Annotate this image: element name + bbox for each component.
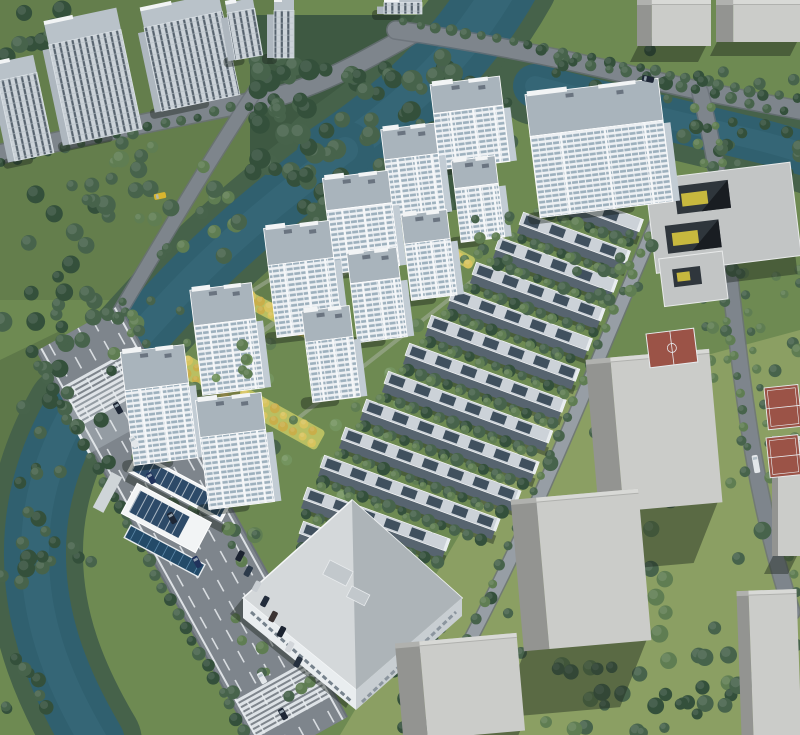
tree-highlight [461,426,466,431]
tree-highlight [737,436,743,442]
tree-highlight [56,335,63,342]
tree-highlight [558,61,564,67]
tree-highlight [11,654,18,661]
tree-highlight [660,723,666,729]
tree-highlight [531,239,537,245]
sports-court [764,384,800,429]
tree-highlight [115,501,123,509]
tree-highlight [503,98,508,103]
tree-highlight [464,284,469,289]
tree-highlight [15,576,23,584]
tree-highlight [431,23,437,29]
tree-highlight [269,163,277,171]
tree-highlight [383,433,388,438]
tree-highlight [520,304,525,309]
tree-highlight [95,413,103,421]
block-roof-highlight [652,0,711,4]
tree-highlight [406,474,411,479]
tree-highlight [403,102,414,113]
tree-highlight [157,583,163,589]
tree-highlight [129,183,138,192]
tree-highlight [691,121,696,126]
tree-highlight [585,223,591,229]
tree-highlight [486,324,493,331]
tree-highlight [353,455,359,461]
tree-highlight [37,551,44,558]
tree-highlight [225,699,231,705]
tree-highlight [621,67,627,73]
tree-highlight [524,41,529,46]
tree-highlight [658,78,664,84]
tree-highlight [237,340,243,346]
tree-highlight [376,395,381,400]
tree-highlight [610,231,618,239]
tree-highlight [135,214,141,220]
tree-highlight [391,471,396,476]
tree-highlight [736,389,741,394]
tree-highlight [143,122,148,127]
tree-highlight [378,463,385,470]
tree-highlight [245,103,250,108]
tree-highlight [432,556,439,563]
tree-highlight [533,380,538,385]
rooftop-unit [433,217,440,222]
tree-highlight [252,531,257,536]
tree-highlight [691,85,696,90]
tree-highlight [128,330,133,335]
tree-highlight [475,233,481,239]
tree-highlight [615,264,621,270]
tree-highlight [726,93,732,99]
tree-highlight [76,333,85,342]
block-front-face [536,493,651,649]
tree-highlight [753,365,758,370]
tree-highlight [465,352,471,358]
tree-highlight [163,244,169,250]
tree-highlight [628,270,634,276]
tree-highlight [658,572,667,581]
tree-highlight [147,142,154,149]
tree-highlight [652,626,662,636]
tree-highlight [723,318,727,322]
tree-highlight [114,314,119,319]
tree-highlight [371,497,377,503]
tree-highlight [566,354,572,360]
tree-highlight [353,70,361,78]
tree-highlight [571,289,576,294]
tree-highlight [492,362,497,367]
tree-highlight [708,162,715,169]
tree-highlight [22,236,31,245]
tree-highlight [721,326,728,333]
tree-highlight [358,84,368,94]
tree-highlight [555,353,559,357]
tree-highlight [42,373,49,380]
tree-highlight [763,105,768,110]
tree-highlight [47,206,56,215]
tree-highlight [748,328,753,333]
tree-highlight [443,380,449,386]
tree-highlight [540,344,546,350]
tree-highlight [716,139,720,143]
tree-highlight [745,99,751,105]
rooftop-unit [478,85,485,90]
tree-highlight [730,351,735,356]
tree-highlight [114,152,123,161]
tree-highlight [470,321,475,326]
tree-highlight [740,467,746,473]
tree-highlight [548,418,554,424]
rooftop-unit [335,313,342,318]
tree-highlight [664,95,669,100]
tree-highlight [320,124,329,133]
tree-highlight [455,388,459,392]
tree-highlight [474,250,479,255]
tree-highlight [708,322,715,329]
tree-highlight [775,91,780,96]
tree-highlight [17,537,24,544]
tree-highlight [790,570,795,575]
tree-highlight [337,491,345,499]
tree-highlight [496,474,501,479]
tree-highlight [93,463,100,470]
tree-highlight [548,314,554,320]
tree-highlight [493,34,498,39]
tree-highlight [35,690,41,696]
tree-highlight [26,346,33,353]
block-front-face [611,353,723,511]
tree-highlight [719,159,724,164]
tree-highlight [80,287,89,296]
tree-highlight [461,29,467,35]
tree-highlight [620,287,625,292]
tree-highlight [645,232,651,238]
tree-highlight [510,299,516,305]
tree-highlight [755,523,765,533]
tree-highlight [538,244,542,248]
tree-highlight [161,119,166,124]
tree-highlight [23,507,29,513]
rooftop-unit [309,229,316,234]
tree-highlight [554,431,560,437]
tree-highlight [426,377,432,383]
tree-highlight [490,437,494,441]
tree-highlight [403,71,415,83]
tree-highlight [780,107,785,112]
tree-highlight [41,527,47,533]
tree-highlight [504,609,510,615]
tree-highlight [181,622,188,629]
tree-highlight [299,168,308,177]
tree-highlight [598,227,604,233]
tree-highlight [144,555,151,562]
tree-highlight [522,409,528,415]
tree-highlight [434,416,438,420]
tree-highlight [605,57,611,63]
tree-highlight [760,400,765,405]
tree-highlight [184,339,189,344]
tree-highlight [616,253,622,259]
tree-highlight [788,338,795,345]
tree-highlight [651,65,657,71]
tree-highlight [782,127,789,134]
tree-highlight [208,672,215,679]
tree-highlight [251,149,263,161]
tree-highlight [28,313,38,323]
tree-highlight [738,406,743,411]
tree-highlight [294,94,302,102]
rooftop-unit [368,179,375,184]
tree-highlight [400,436,406,442]
tree-highlight [757,384,761,388]
tree-highlight [572,218,579,225]
tree-highlight [789,75,795,81]
rendering-canvas [0,0,800,735]
tree-highlight [557,249,563,255]
scene-layers [0,0,800,735]
tree-highlight [450,525,456,531]
tree-highlight [416,83,423,90]
tree-highlight [62,387,69,394]
tree-highlight [505,212,511,218]
tree-highlight [277,125,289,137]
tree-highlight [476,534,483,541]
tree-highlight [484,290,489,295]
tree-highlight [357,491,364,498]
tree-highlight [480,597,486,603]
block-front-face [749,593,800,735]
tree-highlight [383,500,391,508]
block-side-face [716,4,733,42]
tree-highlight [135,150,143,158]
tower-side-face [267,14,274,58]
tree-highlight [447,492,452,497]
tree-highlight [106,173,113,180]
tree-highlight [102,308,110,316]
tree-highlight [448,349,453,354]
tree-highlight [625,261,631,267]
tree-highlight [698,76,704,82]
tree-highlight [518,372,523,377]
tree-highlight [399,367,403,371]
tree-highlight [729,118,734,123]
tree-highlight [458,493,464,499]
tree-highlight [588,53,593,58]
tree-highlight [445,64,456,75]
tree-highlight [793,94,798,99]
tree-highlight [713,80,720,87]
tree-highlight [238,725,245,732]
tree-highlight [217,249,226,258]
tree-highlight [744,86,751,93]
tree-highlight [637,249,642,254]
tree-highlight [719,67,725,73]
tree-highlight [474,426,481,433]
tree-highlight [365,113,373,121]
tree-highlight [569,58,574,63]
tree-highlight [121,308,126,313]
tree-highlight [676,81,683,88]
tree-highlight [649,590,658,599]
tree-highlight [57,400,62,405]
tree-highlight [410,511,417,518]
tree-highlight [560,390,566,396]
tree-highlight [288,171,297,180]
tree-highlight [412,444,417,449]
tree-highlight [503,255,509,261]
tree-highlight [661,653,670,662]
tree-highlight [569,397,574,402]
tree-highlight [722,676,730,684]
tree-highlight [731,83,736,88]
tree-highlight [12,37,21,46]
tree-highlight [57,285,67,295]
tree-highlight [17,401,25,409]
tree-highlight [537,472,541,476]
tree-highlight [18,663,26,671]
tree-highlight [738,129,744,135]
tree-highlight [15,477,22,484]
tree-highlight [50,537,57,544]
tree-highlight [586,61,592,67]
tree-highlight [196,207,204,215]
tree-highlight [40,701,48,709]
tree-highlight [107,366,113,372]
tree-highlight [745,309,750,314]
tree-highlight [602,324,607,329]
tree-highlight [19,561,29,571]
tree-highlight [703,124,708,129]
block-side-face [637,4,652,46]
tree-highlight [430,524,435,529]
tree-highlight [244,370,249,375]
tree-highlight [439,342,445,348]
block-roof-highlight [733,0,800,4]
tree-highlight [373,426,379,432]
tree-highlight [698,696,707,705]
tree-highlight [693,139,699,145]
tower-facade [530,120,673,218]
tree-highlight [584,259,589,264]
tree-highlight [540,418,545,423]
tree-highlight [147,297,152,302]
tree-highlight [405,406,409,410]
tree-highlight [435,50,445,60]
tree-highlight [487,258,492,263]
block-shadow [710,40,798,56]
tree-highlight [78,439,85,446]
rooftop-unit [241,401,248,406]
tree-highlight [292,125,303,136]
tree-highlight [187,637,192,642]
tree-highlight [86,453,91,458]
tree-highlight [417,22,422,27]
tree-highlight [646,240,653,247]
tree-highlight [463,530,469,536]
tree-highlight [25,287,33,295]
tree-highlight [86,310,95,319]
tree-highlight [148,213,156,221]
rooftop-unit [616,90,623,95]
tree-highlight [476,502,481,507]
aerial-site-rendering [0,0,800,735]
tree-highlight [431,483,438,490]
tree-highlight [362,461,367,466]
tree-highlight [742,291,747,296]
tree-highlight [177,241,184,248]
tree-highlight [514,335,519,340]
tree-highlight [109,348,116,355]
tree-highlight [173,609,180,616]
tree-highlight [209,226,216,233]
tree-highlight [697,650,707,660]
tree-highlight [176,307,181,312]
tree-highlight [666,72,671,77]
tree-highlight [255,103,263,111]
rooftop-unit [381,255,388,260]
tree-highlight [223,192,230,199]
tree-highlight [72,426,77,431]
tree-highlight [554,53,559,58]
tower-side-face [377,7,384,14]
tree-highlight [86,557,92,563]
tree-highlight [177,116,183,122]
tree-highlight [79,238,88,247]
tree-highlight [565,253,571,259]
tree-highlight [35,427,42,434]
tree-highlight [724,356,728,360]
tree-highlight [164,200,173,209]
tree-highlight [496,506,504,514]
tree-highlight [220,689,225,694]
tree-highlight [335,451,340,456]
tree-highlight [504,542,509,547]
tree-highlight [308,203,316,211]
tree-highlight [694,71,700,77]
tree-highlight [282,455,288,461]
tree-highlight [238,636,244,642]
tree-highlight [128,310,134,316]
tree-highlight [536,309,542,315]
tree-highlight [573,267,578,272]
tree-highlight [726,478,732,484]
context-massing-block [630,0,711,62]
roof-parapet [384,0,399,2]
tree-highlight [534,275,539,280]
tree-highlight [527,446,533,452]
tree-highlight [52,361,62,371]
tree-highlight [676,699,682,705]
tree-highlight [103,456,111,464]
tree-highlight [604,294,611,301]
tree-highlight [471,614,477,620]
tree-highlight [342,72,349,79]
tree-highlight [300,60,312,72]
tree-highlight [207,182,217,192]
tree-highlight [585,293,591,299]
tree-highlight [296,683,303,690]
tree-highlight [441,454,445,458]
tree-highlight [478,32,483,37]
tree-highlight [792,344,800,352]
tree-highlight [563,318,569,324]
tree-highlight [165,594,172,601]
sports-court [766,435,800,478]
tree-highlight [298,200,307,209]
tree-highlight [134,326,141,333]
tree-highlight [734,373,738,377]
tree-highlight [544,279,548,283]
